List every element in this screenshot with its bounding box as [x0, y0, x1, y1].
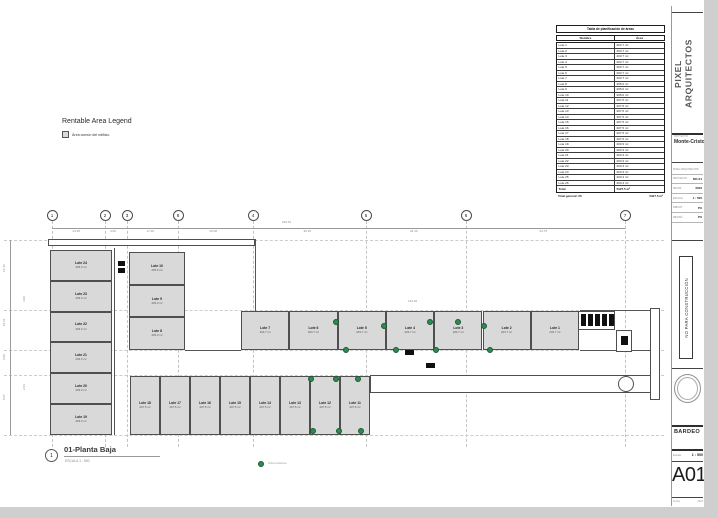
schedule-cell-area: 203.7 m² — [615, 54, 664, 59]
dimension-text: 24.95 — [73, 230, 81, 233]
service-square — [602, 314, 607, 326]
room-lote-21: Lote 21203.3 m² — [50, 342, 112, 373]
grand-total-value: 5327.5 m² — [649, 194, 663, 198]
schedule-cell-name: Lote 19 — [557, 142, 615, 147]
schedule-cell-area: 207.5 m² — [615, 98, 664, 103]
room-lote-24: Lote 24203.3 m² — [50, 250, 112, 281]
project-label: PROYECTO — [674, 135, 688, 138]
schedule-cell-name: Lote 7 — [557, 76, 615, 81]
legend-swatch-icon — [62, 131, 69, 138]
schedule-cell-name: Lote 15 — [557, 120, 615, 125]
tree-icon — [455, 319, 461, 325]
room-lote-4: Lote 4203.7 m² — [386, 311, 434, 350]
schedule-cell-name: Lote 3 — [557, 54, 615, 59]
titleblock-divider — [672, 162, 703, 163]
room-lote-1: Lote 1203.7 m² — [531, 311, 579, 350]
schedule-cell-name: Lote 4 — [557, 60, 615, 65]
room-area: 207.5 m² — [169, 406, 180, 410]
view-title-underline — [64, 456, 160, 457]
schedule-cell-name: Lote 24 — [557, 170, 615, 175]
footer-right: 2023 — [697, 500, 703, 503]
schedule-cell-name: Lote 8 — [557, 82, 615, 87]
info-value: MC-01 — [693, 177, 702, 181]
room-lote-5: Lote 5203.7 m² — [338, 311, 386, 350]
sheet-number: A01 — [672, 464, 706, 486]
gate-symbol — [405, 350, 414, 355]
desk-edge-bottom — [0, 507, 718, 518]
room-area: 205.0 m² — [151, 334, 162, 338]
tank-circle — [618, 376, 634, 392]
schedule-cell-area: 203.3 m² — [615, 153, 664, 158]
info-label: PIXEL ARQUITECTOS — [673, 168, 699, 171]
dimension-text: 32.40 — [410, 230, 418, 233]
schedule-row: Total5327.5 m² — [557, 186, 664, 192]
dimension-text: 54.75 — [540, 230, 548, 233]
titleblock-info: PIXEL ARQUITECTOSPROYECTOMC-01FECHA2023E… — [672, 165, 703, 223]
schedule-cell-area: 203.3 m² — [615, 170, 664, 175]
info-row: PROYECTOMC-01 — [672, 175, 703, 185]
area-schedule-table: Tabla de planificación de áreas Nombre Á… — [556, 25, 665, 198]
schedule-cell-name: Lote 23 — [557, 164, 615, 169]
room-area: 203.3 m² — [75, 389, 86, 393]
schedule-cell-area: 207.5 m² — [615, 131, 664, 136]
room-lote-16: Lote 16207.5 m² — [190, 376, 220, 435]
titleblock-divider — [672, 240, 703, 241]
drawing-sheet: Rentable Area Legend Área común del edif… — [0, 0, 718, 518]
room-lote-6: Lote 6203.7 m² — [289, 311, 337, 350]
schedule-cell-area: 203.3 m² — [615, 164, 664, 169]
room-area: 205.0 m² — [151, 302, 162, 306]
schedule-cell-area: 203.4 m² — [615, 175, 664, 180]
room-lote-18: Lote 18207.5 m² — [130, 376, 160, 435]
info-row: PIXEL ARQUITECTOS — [672, 165, 703, 175]
tree-note: Árbol existente — [268, 461, 287, 465]
room-lote-10: Lote 10205.0 m² — [129, 252, 185, 285]
titleblock-divider — [672, 368, 703, 369]
info-row: ESCALA1 : 500 — [672, 194, 703, 204]
schedule-cell-area: 203.3 m² — [615, 159, 664, 164]
legend-item: Área común del edificio — [62, 131, 109, 138]
schedule-cell-area: 207.5 m² — [615, 120, 664, 125]
room-lote-13: Lote 13207.5 m² — [280, 376, 310, 435]
footer-left: Fecha — [673, 500, 680, 503]
room-lote-20: Lote 20203.3 m² — [50, 373, 112, 404]
room-area: 207.5 m² — [319, 406, 330, 410]
schedule-cell-area: 205.0 m² — [615, 87, 664, 92]
schedule-cell-area: 207.5 m² — [615, 104, 664, 109]
room-area: 207.5 m² — [259, 406, 270, 410]
schedule-cell-area: 5327.5 m² — [615, 186, 664, 192]
perimeter-wall-strip — [370, 375, 660, 393]
schedule-cell-area: 207.5 m² — [615, 137, 664, 142]
scale-value: 1 : 500 — [692, 453, 703, 457]
room-lote-3: Lote 3203.7 m² — [434, 311, 482, 350]
schedule-cell-name: Lote 26 — [557, 181, 615, 186]
info-label: PROYECTO — [673, 177, 687, 180]
stair-core — [621, 336, 628, 345]
tree-icon — [308, 376, 314, 382]
view-number-bubble: 1 — [45, 449, 58, 462]
schedule-cell-name: Lote 2 — [557, 49, 615, 54]
info-row: FECHA2023 — [672, 184, 703, 194]
room-lote-7: Lote 7203.7 m² — [241, 311, 289, 350]
schedule-cell-name: Lote 22 — [557, 159, 615, 164]
top-wall-strip — [48, 239, 255, 246]
gate-symbol — [426, 363, 435, 368]
schedule-cell-name: Lote 17 — [557, 131, 615, 136]
dimension-text-left: 8.67 — [3, 394, 6, 400]
project-name: Monte-Cristo — [674, 139, 704, 145]
schedule-cell-name: Lote 20 — [557, 148, 615, 153]
room-area: 205.0 m² — [151, 269, 162, 273]
schedule-cell-name: Lote 1 — [557, 43, 615, 48]
dimension-text-left: 16.46 — [3, 264, 6, 272]
schedule-cell-area: 203.7 m² — [615, 43, 664, 48]
legend-title: Rentable Area Legend — [62, 118, 132, 125]
not-for-construction-stamp: NO PARA CONSTRUCCIÓN — [679, 256, 693, 359]
schedule-cell-name: Lote 21 — [557, 153, 615, 158]
info-label: FECHA — [673, 187, 681, 190]
status-text: NO PARA CONSTRUCCIÓN — [684, 278, 689, 338]
room-lote-9: Lote 9205.0 m² — [129, 285, 185, 318]
room-lote-8: Lote 8205.0 m² — [129, 317, 185, 350]
schedule-cell-name: Lote 25 — [557, 175, 615, 180]
dimension-text: 17.06 — [147, 230, 155, 233]
grid-bubble-8: 8 — [173, 210, 184, 221]
scale-row: Escala 1 : 500 — [673, 453, 703, 457]
room-lote-2: Lote 2203.7 m² — [483, 311, 531, 350]
schedule-cell-area: 207.5 m² — [615, 115, 664, 120]
schedule-cell-area: 203.7 m² — [615, 49, 664, 54]
door-symbol — [118, 261, 125, 266]
schedule-cell-area: 203.3 m² — [615, 148, 664, 153]
tree-icon — [333, 319, 339, 325]
schedule-cell-name: Lote 6 — [557, 71, 615, 76]
room-lote-14: Lote 14207.5 m² — [250, 376, 280, 435]
tree-icon — [355, 376, 361, 382]
tree-icon — [310, 428, 316, 434]
dimension-text: 4.09 — [110, 230, 116, 233]
tree-icon — [433, 347, 439, 353]
tree-icon — [358, 428, 364, 434]
tree-icon — [393, 347, 399, 353]
titleblock-divider — [672, 497, 703, 498]
schedule-cell-area: 207.5 m² — [615, 126, 664, 131]
tree-icon — [336, 428, 342, 434]
room-area: 203.3 m² — [75, 297, 86, 301]
tree-icon — [487, 347, 493, 353]
info-value: 2023 — [695, 186, 702, 190]
tree-icon — [343, 347, 349, 353]
tree-icon — [381, 323, 387, 329]
room-area: 207.5 m² — [289, 406, 300, 410]
schedule-cell-area: 207.5 m² — [615, 109, 664, 114]
firm-name: PIXEL ARQUITECTOS — [673, 16, 702, 132]
dimension-line-left — [10, 240, 11, 435]
schedule-rows: Lote 1203.7 m²Lote 2203.7 m²Lote 3203.7 … — [556, 42, 665, 193]
wall-line — [185, 350, 241, 351]
schedule-cell-area: 205.0 m² — [615, 93, 664, 98]
info-label: ESCALA — [673, 197, 683, 200]
room-lote-22: Lote 22203.3 m² — [50, 312, 112, 343]
info-label: REVISÓ — [673, 216, 682, 219]
right-column-wall — [650, 308, 660, 400]
mid-dimension: 134.62 — [408, 300, 417, 303]
room-area: 203.7 m² — [549, 331, 560, 335]
dimension-text: 25.08 — [210, 230, 218, 233]
zone-label: BARDEO — [671, 429, 703, 435]
grid-line-vertical — [127, 221, 128, 447]
dimension-text-left: 2.04 — [23, 384, 26, 390]
schedule-cell-area: 203.7 m² — [615, 76, 664, 81]
info-row: DIBUJÓPX — [672, 203, 703, 213]
titleblock-footer: Fecha 2023 — [673, 500, 703, 503]
schedule-cell-area: 203.7 m² — [615, 65, 664, 70]
room-lote-23: Lote 23203.3 m² — [50, 281, 112, 312]
grid-bubble-2: 2 — [100, 210, 111, 221]
room-area: 203.7 m² — [260, 331, 271, 335]
schedule-grand-total: Total general: 26 5327.5 m² — [556, 194, 665, 198]
info-value: PX — [698, 215, 702, 219]
grid-bubble-1: 1 — [47, 210, 58, 221]
room-area: 203.7 m² — [356, 331, 367, 335]
schedule-cell-name: Lote 18 — [557, 137, 615, 142]
schedule-cell-name: Lote 12 — [557, 104, 615, 109]
room-area: 203.3 m² — [75, 328, 86, 332]
schedule-cell-name: Lote 14 — [557, 115, 615, 120]
schedule-cell-name: Total — [557, 186, 615, 192]
service-square — [609, 314, 614, 326]
info-value: 1 : 500 — [693, 196, 702, 200]
room-area: 207.5 m² — [349, 406, 360, 410]
service-square — [581, 314, 586, 326]
tree-icon — [258, 461, 264, 467]
room-area: 203.7 m² — [405, 331, 416, 335]
info-row: REVISÓPX — [672, 213, 703, 223]
info-value: PX — [698, 206, 702, 210]
dimension-text-left: 4.00 — [23, 296, 26, 302]
grand-total-label: Total general: 26 — [558, 194, 582, 198]
titleblock-divider — [672, 449, 703, 451]
room-area: 203.7 m² — [308, 331, 319, 335]
room-area: 207.5 m² — [139, 406, 150, 410]
info-label: DIBUJÓ — [673, 206, 682, 209]
door-symbol — [118, 268, 125, 273]
room-area: 207.5 m² — [199, 406, 210, 410]
corridor-wall — [114, 248, 115, 435]
scale-label: Escala — [673, 454, 681, 457]
schedule-cell-name: Lote 9 — [557, 87, 615, 92]
schedule-cell-area: 203.7 m² — [615, 71, 664, 76]
seal-circle-inner-icon — [677, 377, 698, 400]
grid-bubble-5: 5 — [361, 210, 372, 221]
room-area: 207.5 m² — [229, 406, 240, 410]
tree-icon — [333, 376, 339, 382]
schedule-cell-area: 203.3 m² — [615, 142, 664, 147]
schedule-title: Tabla de planificación de áreas — [556, 25, 665, 33]
view-scale: ESCALA 1 : 500 — [65, 459, 90, 463]
dimension-text-left: 10.61 — [3, 318, 6, 326]
schedule-cell-name: Lote 11 — [557, 98, 615, 103]
tree-icon — [481, 323, 487, 329]
room-lote-11: Lote 11207.5 m² — [340, 376, 370, 435]
tree-icon — [427, 319, 433, 325]
service-square — [588, 314, 593, 326]
grid-line-horizontal — [4, 435, 664, 436]
room-lote-19: Lote 19203.3 m² — [50, 404, 112, 435]
room-area: 203.3 m² — [75, 266, 86, 270]
titleblock-divider — [672, 425, 703, 427]
grid-bubble-4: 4 — [248, 210, 259, 221]
service-square — [595, 314, 600, 326]
grid-bubble-7: 7 — [620, 210, 631, 221]
schedule-cell-area: 205.0 m² — [615, 82, 664, 87]
schedule-col-area: Área — [615, 36, 664, 40]
titleblock-divider — [672, 12, 703, 13]
room-area: 203.7 m² — [453, 331, 464, 335]
room-area: 203.7 m² — [501, 331, 512, 335]
schedule-cell-name: Lote 16 — [557, 126, 615, 131]
schedule-cell-name: Lote 13 — [557, 109, 615, 114]
dimension-text-left: 6.00 — [3, 354, 6, 360]
schedule-col-nombre: Nombre — [557, 36, 615, 40]
grid-bubble-6: 6 — [461, 210, 472, 221]
overall-dimension: 229.61 — [282, 221, 291, 224]
room-area: 203.3 m² — [75, 420, 86, 424]
room-lote-17: Lote 17207.5 m² — [160, 376, 190, 435]
view-title: 01-Planta Baja — [64, 445, 116, 454]
grid-bubble-3: 3 — [122, 210, 133, 221]
titleblock-divider — [672, 133, 703, 135]
room-lote-12: Lote 12207.5 m² — [310, 376, 340, 435]
legend-item-label: Área común del edificio — [72, 133, 109, 137]
room-area: 203.3 m² — [75, 358, 86, 362]
schedule-cell-area: 203.4 m² — [615, 181, 664, 186]
schedule-cell-area: 203.7 m² — [615, 60, 664, 65]
desk-edge-right — [704, 0, 718, 518]
schedule-header: Nombre Área — [556, 35, 665, 41]
schedule-cell-name: Lote 5 — [557, 65, 615, 70]
wall-line — [255, 239, 256, 312]
schedule-cell-name: Lote 10 — [557, 93, 615, 98]
room-lote-15: Lote 15207.5 m² — [220, 376, 250, 435]
titleblock-divider — [672, 461, 703, 462]
dimension-text: 36.35 — [304, 230, 312, 233]
